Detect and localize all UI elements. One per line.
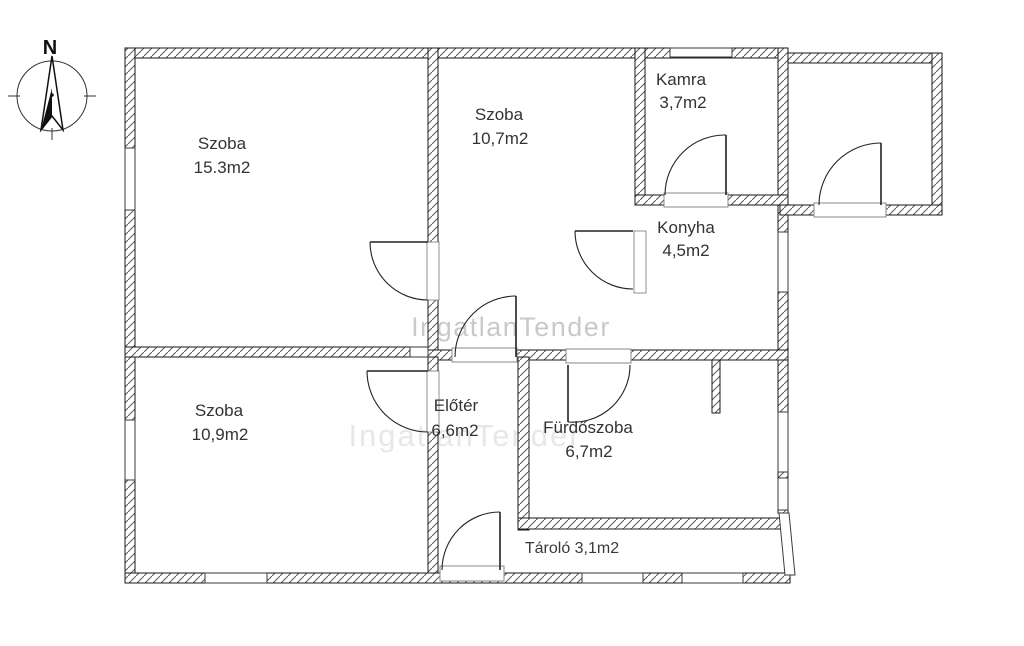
wall-top-right-room (780, 53, 942, 63)
label-szoba153-name: Szoba (198, 134, 247, 153)
window-right-furdo-2 (778, 478, 788, 510)
window-right-konyha (778, 232, 788, 292)
wall-divider-kamra (635, 48, 645, 205)
wall-mid-left (125, 347, 410, 357)
label-eloter-name: Előtér (434, 396, 479, 415)
threshold-entrance (440, 566, 504, 581)
floor-plan-page: IngatlanTender IngatlanTender (0, 0, 1024, 646)
label-tarolo: Tároló 3,1m2 (525, 540, 619, 557)
wall-furdo-bottom (518, 518, 788, 529)
label-szoba153-area: 15.3m2 (194, 158, 251, 177)
window-bottom-szoba109 (205, 573, 267, 583)
threshold-right-room (814, 203, 886, 217)
floor-plan-svg: IngatlanTender IngatlanTender (0, 0, 1024, 646)
window-right-furdo (778, 412, 788, 472)
opening-mid-left-gap (410, 347, 428, 357)
watermark: IngatlanTender (411, 312, 611, 342)
door-arc-konyha (575, 231, 633, 289)
doorway-szoba153 (427, 242, 439, 300)
label-szoba107-name: Szoba (475, 105, 524, 124)
label-furdoszoba-area: 6,7m2 (565, 442, 612, 461)
label-szoba109-name: Szoba (195, 401, 244, 420)
door-arc-entrance (442, 512, 500, 570)
label-konyha-name: Konyha (657, 218, 715, 237)
label-furdoszoba-name: Fürdőszoba (543, 418, 633, 437)
wall-eloter-furdo (518, 357, 529, 530)
threshold-kamra (664, 193, 728, 207)
window-left-szoba153 (125, 148, 135, 210)
label-kamra-name: Kamra (656, 70, 707, 89)
window-right-tarolo-slant (779, 513, 795, 575)
door-arc-right-room (819, 143, 881, 205)
label-eloter-area: 6,6m2 (431, 421, 478, 440)
label-konyha-area: 4,5m2 (662, 241, 709, 260)
compass: N (8, 37, 96, 140)
threshold-furdoszoba (566, 349, 631, 363)
window-bottom-tarolo-2 (682, 573, 743, 583)
door-arc-kamra (665, 135, 726, 195)
label-szoba109-area: 10,9m2 (192, 425, 249, 444)
compass-center-dot (50, 93, 54, 97)
wall-furdo-stub (712, 360, 720, 413)
door-arc-szoba153 (370, 242, 428, 300)
window-top-kamra (670, 48, 732, 57)
wall-right-room-right (932, 53, 942, 215)
compass-north-label: N (43, 37, 57, 59)
label-kamra-area: 3,7m2 (659, 93, 706, 112)
label-szoba107-area: 10,7m2 (472, 129, 529, 148)
wall-left (125, 48, 135, 583)
window-left-szoba109 (125, 420, 135, 480)
wall-divider-szoba (428, 48, 438, 357)
door-arc-furdoszoba (568, 365, 630, 422)
threshold-eloter-szoba107 (452, 348, 517, 362)
doorway-konyha (634, 231, 646, 293)
window-bottom-tarolo-1 (582, 573, 643, 583)
